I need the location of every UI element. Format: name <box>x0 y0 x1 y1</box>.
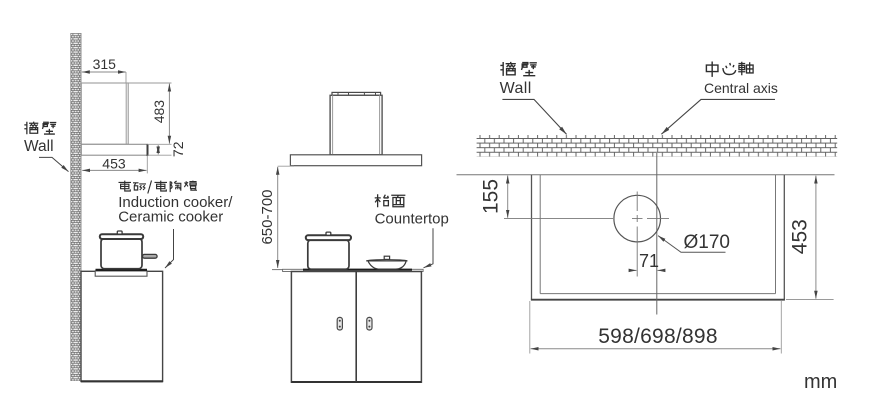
svg-text:Wall: Wall <box>500 80 532 97</box>
svg-text:Countertop: Countertop <box>375 211 449 228</box>
svg-text:Ceramic cooker: Ceramic cooker <box>118 209 223 226</box>
svg-text:315: 315 <box>93 56 117 72</box>
svg-text:453: 453 <box>789 219 812 254</box>
svg-text:453: 453 <box>102 155 126 171</box>
svg-text:598/698/898: 598/698/898 <box>598 325 718 348</box>
svg-text:Central axis: Central axis <box>704 80 778 96</box>
svg-text:Ø170: Ø170 <box>684 232 730 253</box>
svg-text:Wall: Wall <box>24 138 54 155</box>
svg-text:650-700: 650-700 <box>259 189 276 244</box>
svg-text:155: 155 <box>480 179 503 214</box>
svg-text:mm: mm <box>804 371 837 393</box>
svg-text:72: 72 <box>170 141 186 157</box>
svg-text:483: 483 <box>151 100 167 124</box>
svg-text:71: 71 <box>639 251 659 271</box>
